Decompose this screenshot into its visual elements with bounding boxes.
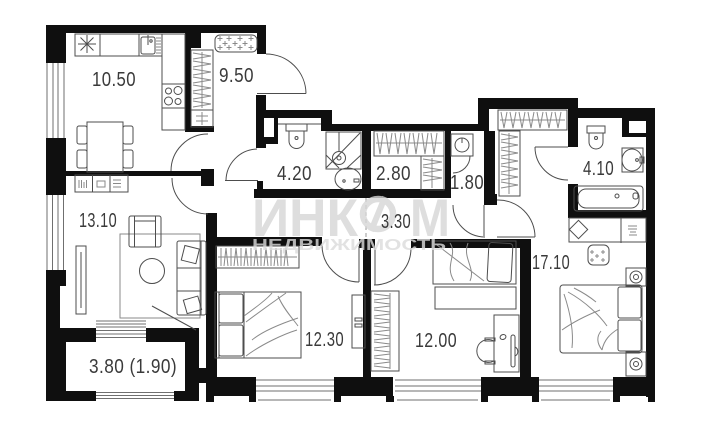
svg-text:1.80: 1.80 xyxy=(450,172,484,194)
svg-text:НЕДВИЖИМОСТЬ: НЕДВИЖИМОСТЬ xyxy=(252,237,446,254)
svg-text:3.30: 3.30 xyxy=(381,211,411,233)
svg-text:10.50: 10.50 xyxy=(92,69,136,91)
svg-text:12.30: 12.30 xyxy=(305,329,344,351)
svg-text:4.10: 4.10 xyxy=(583,158,614,180)
svg-text:9.50: 9.50 xyxy=(219,65,254,87)
svg-text:4.20: 4.20 xyxy=(277,163,312,185)
svg-text:17.10: 17.10 xyxy=(532,252,570,274)
svg-text:13.10: 13.10 xyxy=(79,210,117,232)
svg-text:3.80 (1.90): 3.80 (1.90) xyxy=(89,356,177,378)
svg-text:12.00: 12.00 xyxy=(415,330,457,352)
svg-text:2.80: 2.80 xyxy=(376,163,411,185)
